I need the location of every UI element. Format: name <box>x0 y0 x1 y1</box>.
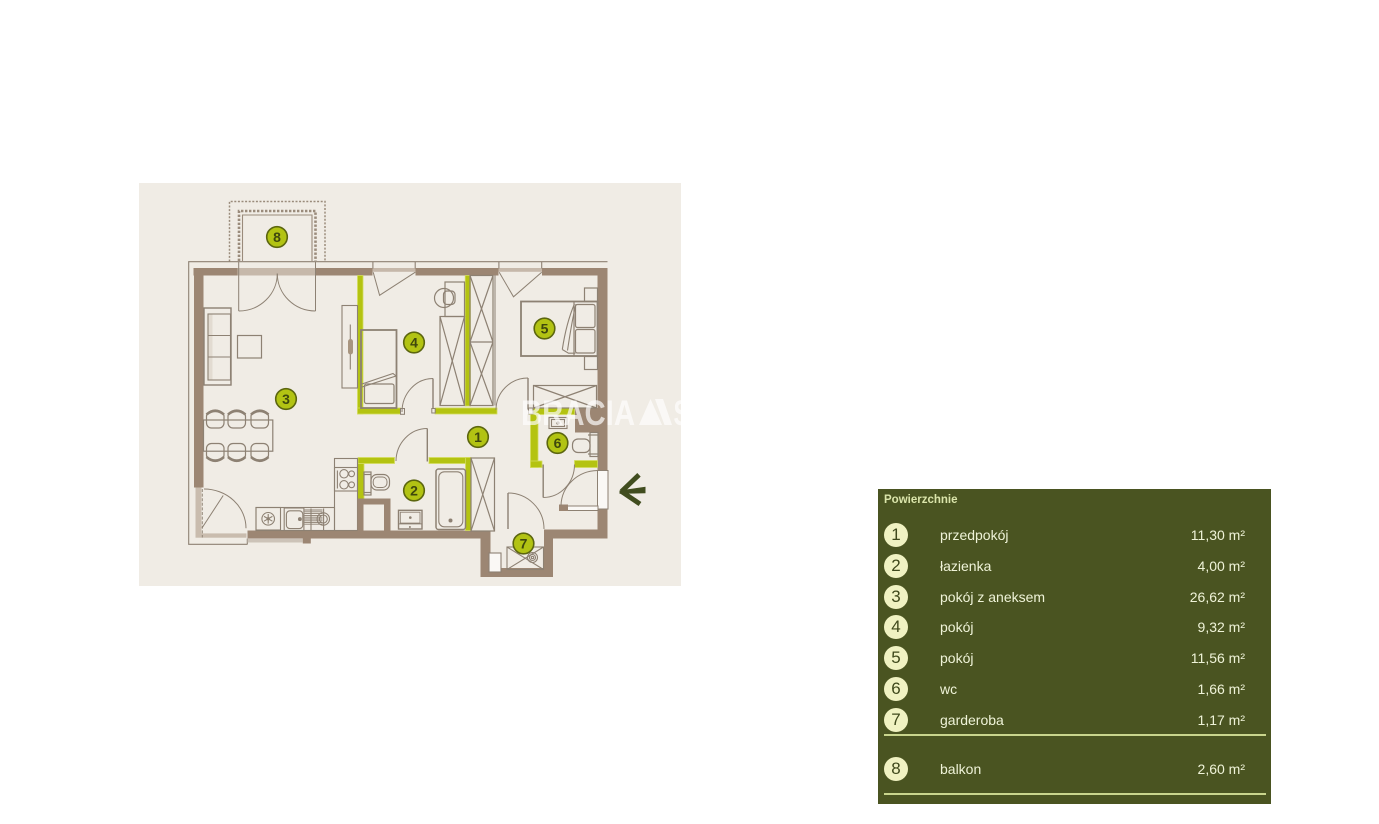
svg-text:3: 3 <box>282 391 290 407</box>
svg-text:S: S <box>674 394 690 433</box>
svg-text:2: 2 <box>410 483 418 499</box>
svg-text:8: 8 <box>273 229 281 245</box>
svg-text:6: 6 <box>554 435 562 451</box>
svg-text:7: 7 <box>520 536 528 552</box>
svg-text:4: 4 <box>410 335 418 351</box>
svg-text:5: 5 <box>541 321 549 337</box>
svg-text:BRACIA: BRACIA <box>521 394 635 433</box>
svg-text:1: 1 <box>474 429 482 445</box>
